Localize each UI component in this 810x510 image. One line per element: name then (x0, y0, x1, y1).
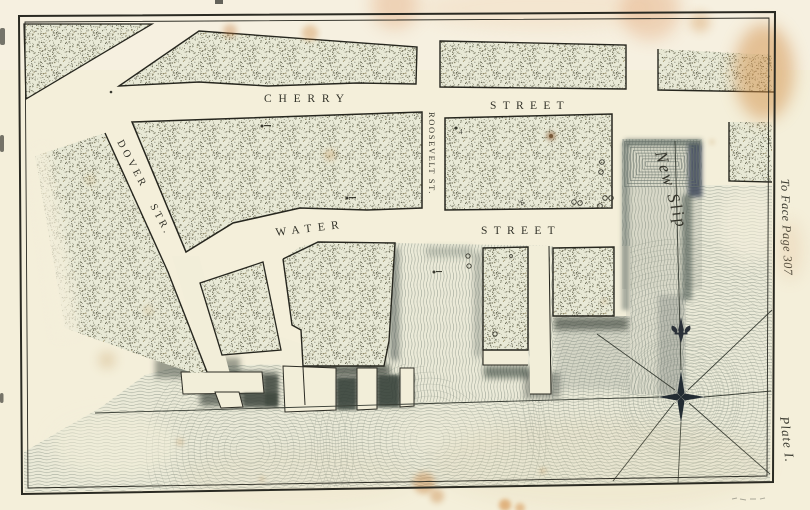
svg-text:STREET: STREET (481, 225, 561, 237)
svg-text:4: 4 (459, 128, 463, 136)
svg-text:ROOSEVELT ST.: ROOSEVELT ST. (427, 112, 437, 195)
svg-text:CHERRY: CHERRY (264, 93, 351, 105)
svg-text:STREET: STREET (490, 100, 570, 112)
